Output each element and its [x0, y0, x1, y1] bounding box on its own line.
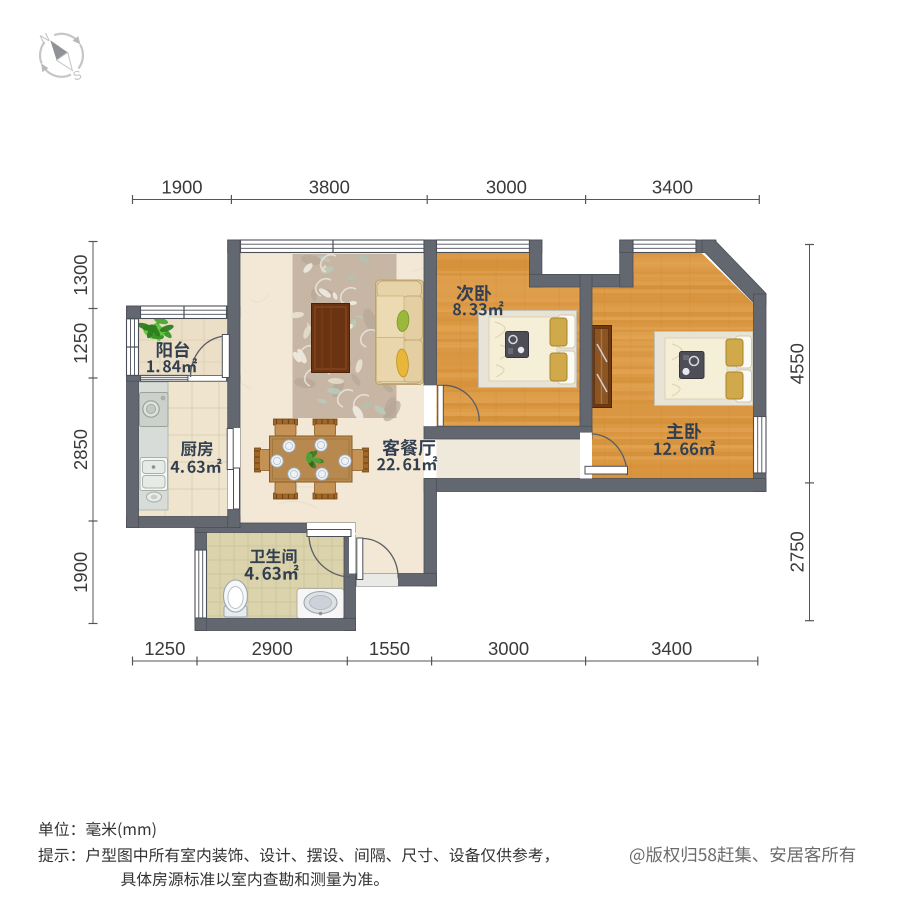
svg-text:3000: 3000 [486, 177, 527, 198]
svg-text:4550: 4550 [787, 343, 808, 384]
svg-text:2750: 2750 [787, 531, 808, 572]
svg-text:3000: 3000 [488, 638, 529, 659]
svg-text:3800: 3800 [309, 177, 350, 198]
svg-text:1250: 1250 [144, 638, 185, 659]
svg-text:2850: 2850 [70, 429, 91, 470]
svg-text:1250: 1250 [70, 323, 91, 364]
svg-text:1900: 1900 [161, 177, 202, 198]
svg-text:1550: 1550 [369, 638, 410, 659]
svg-text:3400: 3400 [652, 177, 693, 198]
svg-text:2900: 2900 [252, 638, 293, 659]
svg-text:1900: 1900 [70, 552, 91, 593]
svg-text:3400: 3400 [651, 638, 692, 659]
svg-text:1300: 1300 [70, 254, 91, 295]
